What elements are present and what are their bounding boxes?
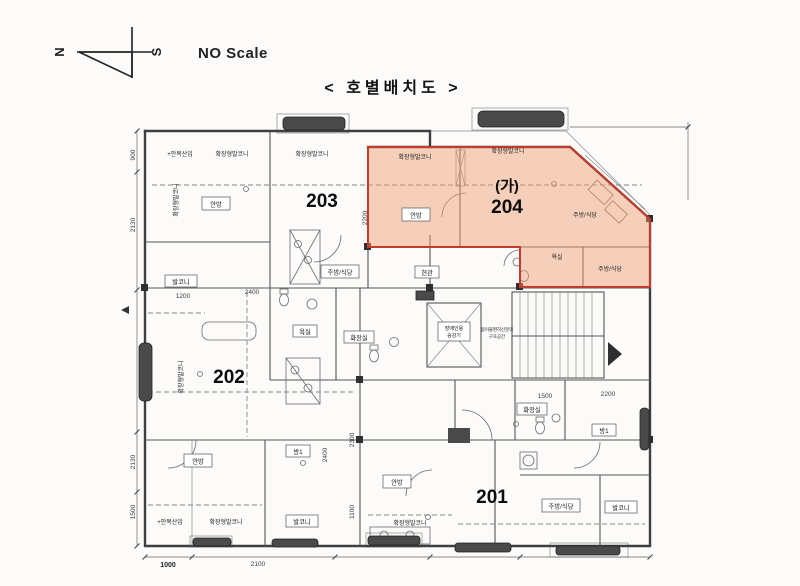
ext-balcony-label-vertical: 확장형발코니 [177,360,185,393]
room-label-kitchen-dining: 주방/식당 [321,265,359,278]
svg-text:주방/식당: 주방/식당 [549,502,574,511]
stair-direction-arrow-icon [608,342,622,366]
dim-left-900: 900 [130,149,137,160]
room-label-kitchen-dining: 주방/식당 [542,499,580,512]
room-label-room1: 방1 [286,445,310,457]
floor-plan-page: N S NO Scale < 호별배치도 > [0,0,800,586]
unit-204-mark: (가) [495,178,519,195]
svg-text:방1: 방1 [293,447,303,456]
svg-text:발코니: 발코니 [612,503,629,512]
dim-bottom-2100: 2100 [251,561,266,568]
svg-text:현관: 현관 [421,268,433,277]
svg-text:주방/식당: 주방/식당 [328,268,353,277]
compass-south-label: S [149,47,164,56]
ext-balcony-label-vertical: 확장형발코니 [172,183,180,216]
room-label-balcony: 발코니 [605,501,637,513]
room-label-master-bedroom: 안방 [402,208,430,221]
room-label-balcony: 발코니 [165,275,197,287]
svg-text:화장실: 화장실 [350,333,368,342]
dim-left-2130: 2130 [130,217,137,232]
svg-text:안방: 안방 [210,200,222,209]
svg-text:안방: 안방 [391,478,403,487]
unit-203-number: 203 [306,191,338,212]
dim-left-2130: 2130 [130,454,137,469]
compass-north-label: N [52,47,67,56]
elevator: 장애인용 승강기 몸이불편하신분의 구호공간 [416,291,513,367]
unit-202-number: 202 [213,367,245,388]
kitchen-dining-label: 주방/식당 [598,265,622,273]
unit-204-number: 204 [491,197,523,218]
elevator-label-line1: 장애인용 [445,325,464,332]
plan-title: < 호별배치도 > [324,79,461,97]
ext-balcony-label: 확장형발코니 [209,518,242,526]
svg-text:화장실: 화장실 [523,405,541,414]
room-label-room1: 방1 [592,424,616,436]
bath-label: 욕실 [551,253,562,261]
elevator-label-line2: 승강기 [447,332,461,339]
dim-left-1500: 1500 [130,504,137,519]
dim-2200-vert: 2200 [362,210,369,225]
dim-1200: 1200 [176,293,191,300]
ext-balcony-label: 확장형발코니 [215,150,248,158]
floor-plan-drawing: N S NO Scale < 호별배치도 > [0,0,800,586]
room-label-master-bedroom: 안방 [383,475,411,488]
north-arrow-icon: N S [52,27,164,78]
svg-text:발코니: 발코니 [172,277,189,286]
room-label-master-bedroom: 안방 [184,454,212,467]
room-label-master-bedroom: 안방 [202,197,230,210]
svg-text:욕실: 욕실 [299,327,311,336]
ext-balcony-label: 확장형발코니 [491,147,524,155]
dim-1500: 1500 [538,393,553,400]
room-label-bath: 욕실 [293,325,317,337]
eaves-note-label: +안목산입 [157,518,183,526]
room-label-toilet: 화장실 [517,403,547,415]
dim-2300-vert: 2300 [349,432,356,447]
svg-text:안방: 안방 [192,457,204,466]
scale-note: NO Scale [198,45,268,62]
svg-text:안방: 안방 [410,211,422,220]
refuge-space-label-line1: 몸이불편하신분의 [481,326,513,333]
dim-2400-vert: 2400 [322,447,329,462]
kitchen-dining-label: 주방/식당 [573,211,597,219]
room-label-toilet: 화장실 [344,331,374,343]
dim-2200: 2200 [601,391,616,398]
ext-balcony-label: 확장형발코니 [295,150,328,158]
ext-balcony-label: 확장형발코니 [393,519,426,527]
dim-2400: 2400 [245,289,260,296]
dim-1100-vert: 1100 [349,505,356,519]
eaves-note-label: +안목산입 [167,150,193,158]
room-label-balcony: 발코니 [286,515,318,527]
left-reference-mark [121,306,129,314]
svg-text:방1: 방1 [599,426,609,435]
ext-balcony-label: 확장형발코니 [398,153,431,161]
refuge-space-label-line2: 구호공간 [489,333,505,340]
svg-text:발코니: 발코니 [293,517,310,526]
dim-bottom-1000: 1000 [160,562,176,569]
room-label-entrance: 현관 [415,266,439,278]
unit-201-number: 201 [476,487,508,508]
staircase [512,292,622,378]
